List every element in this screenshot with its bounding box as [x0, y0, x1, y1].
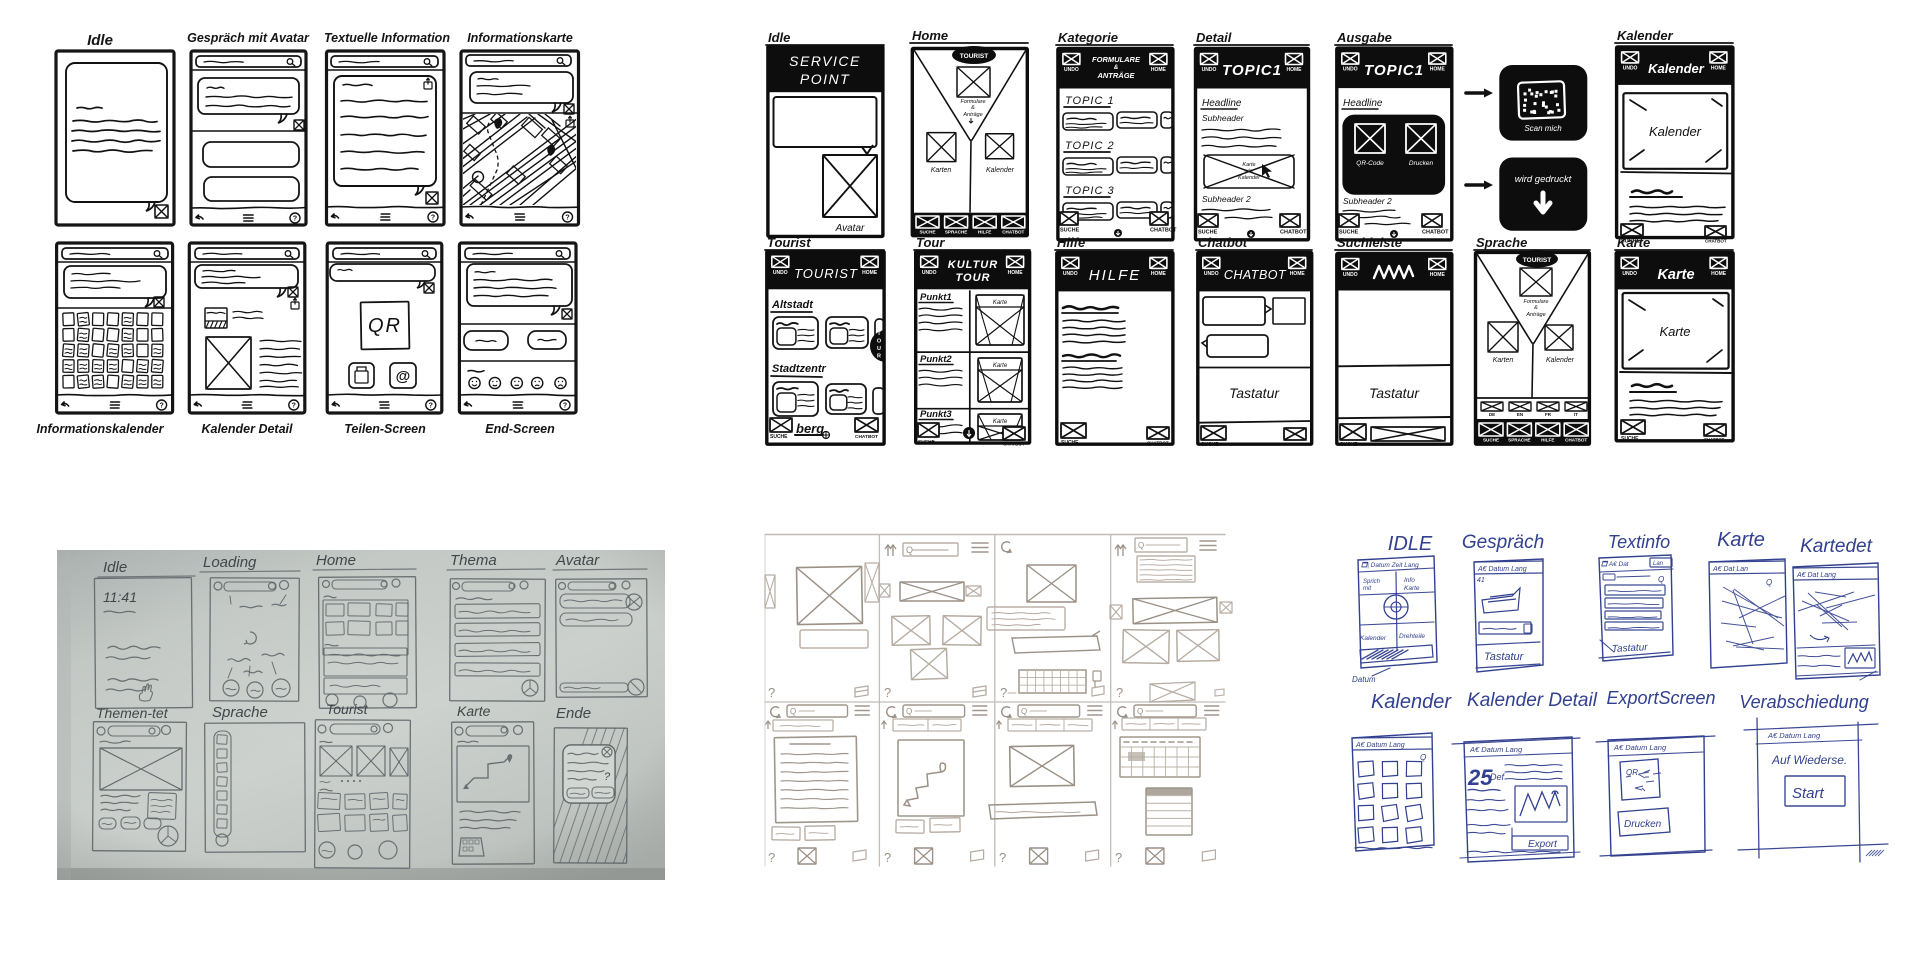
svg-text:UNDO: UNDO	[773, 270, 788, 276]
svg-text:Punkt2: Punkt2	[920, 354, 952, 365]
svg-text:QR: QR	[368, 315, 402, 337]
svg-text:Q: Q	[790, 707, 796, 716]
svg-text:TOUR: TOUR	[956, 272, 991, 284]
svg-text:Karte: Karte	[1404, 585, 1420, 592]
svg-text:🗖| Datum Zeit Lang: 🗖| Datum Zeit Lang	[1361, 561, 1419, 569]
svg-text:CHATBOT: CHATBOT	[1422, 230, 1449, 236]
svg-text:Lan: Lan	[1653, 561, 1664, 567]
svg-text:ExportScreen: ExportScreen	[1606, 688, 1715, 708]
svg-text:Tastatur: Tastatur	[1484, 651, 1525, 663]
svg-text:SUCHE: SUCHE	[1201, 442, 1219, 448]
svg-text:Kalender: Kalender	[986, 167, 1015, 174]
svg-text:O: O	[877, 339, 882, 345]
svg-text:Q: Q	[1658, 575, 1664, 584]
svg-text:A€ Datum Lang: A€ Datum Lang	[1477, 566, 1527, 573]
svg-text:CHATBOT: CHATBOT	[1147, 441, 1169, 446]
svg-text:Kalender Detail: Kalender Detail	[201, 422, 293, 436]
svg-text:Tourist: Tourist	[767, 235, 811, 250]
svg-text:@: @	[396, 368, 411, 385]
svg-text:Idle: Idle	[87, 32, 113, 49]
svg-text:R: R	[877, 354, 881, 360]
svg-text:CHATBOT: CHATBOT	[1280, 230, 1307, 236]
svg-text:Headline: Headline	[1343, 98, 1383, 109]
svg-text:QR: QR	[1626, 768, 1638, 777]
svg-text:mit: mit	[1363, 586, 1371, 592]
svg-text:UNDO: UNDO	[1343, 67, 1358, 73]
svg-text:Altstadt: Altstadt	[771, 299, 814, 311]
svg-text:Kalender: Kalender	[1238, 175, 1261, 181]
svg-text:HOME: HOME	[1430, 272, 1446, 278]
svg-text:A€ Datum Lang: A€ Datum Lang	[1613, 743, 1667, 752]
svg-text:Tour: Tour	[916, 235, 945, 250]
svg-text:SUCHE: SUCHE	[919, 230, 935, 235]
svg-text:CHATBOT: CHATBOT	[1150, 228, 1177, 234]
svg-text:Tastatur: Tastatur	[1612, 642, 1649, 655]
svg-text:A€ Datum Lang: A€ Datum Lang	[1355, 742, 1405, 749]
svg-text:Gespräch mit Avatar: Gespräch mit Avatar	[187, 31, 310, 45]
svg-text:HOME: HOME	[1290, 271, 1306, 277]
svg-text:UNDO: UNDO	[1064, 67, 1079, 73]
svg-text:Kalender: Kalender	[1360, 635, 1387, 642]
svg-text:HILFE: HILFE	[978, 230, 991, 235]
svg-text:Subheader 2: Subheader 2	[1343, 196, 1392, 206]
svg-text:CHATBOT: CHATBOT	[855, 434, 878, 440]
svg-text:SUCHE: SUCHE	[1061, 440, 1079, 446]
svg-text:HOME: HOME	[1151, 67, 1167, 73]
svg-text:Karte: Karte	[993, 419, 1008, 425]
svg-text:Informationskarte: Informationskarte	[467, 31, 573, 45]
svg-text:Punkt1: Punkt1	[920, 292, 952, 303]
svg-text:SPRACHE: SPRACHE	[1508, 438, 1530, 443]
svg-text:Q: Q	[906, 707, 912, 716]
svg-text:FORMULARE: FORMULARE	[1092, 55, 1141, 64]
svg-text:HOME: HOME	[862, 270, 878, 276]
svg-text:TOPIC 3: TOPIC 3	[1065, 185, 1115, 197]
svg-text:A€ Dat Lang: A€ Dat Lang	[1796, 572, 1836, 579]
svg-text:Auf Wiederse.: Auf Wiederse.	[1771, 753, 1847, 767]
svg-text:Kategorie: Kategorie	[1058, 30, 1118, 45]
svg-text:SUCHE: SUCHE	[770, 434, 788, 440]
svg-text:?: ?	[884, 850, 891, 865]
svg-text:Drucken: Drucken	[1409, 160, 1434, 167]
svg-text:Sprich: Sprich	[1363, 579, 1381, 585]
svg-text:?: ?	[884, 685, 891, 700]
svg-text:UNDO: UNDO	[1343, 272, 1358, 278]
svg-text:Anträge: Anträge	[962, 112, 982, 118]
svg-text:UNDO: UNDO	[1622, 271, 1637, 277]
svg-text:Themen-tet: Themen-tet	[96, 705, 169, 721]
svg-text:Karte: Karte	[1717, 529, 1765, 551]
svg-text:TOPIC1: TOPIC1	[1222, 62, 1282, 79]
svg-text:Ausgabe: Ausgabe	[1336, 30, 1392, 45]
svg-text:U: U	[877, 346, 881, 352]
svg-text:?: ?	[768, 850, 775, 865]
svg-text:Ende: Ende	[556, 705, 591, 722]
svg-text:41: 41	[1477, 577, 1485, 584]
svg-text:?: ?	[429, 403, 433, 410]
svg-text:Loading: Loading	[203, 554, 257, 571]
svg-text:Avatar: Avatar	[835, 223, 865, 234]
svg-text:CHATBOT: CHATBOT	[1705, 239, 1727, 244]
svg-text:Karte: Karte	[457, 703, 491, 719]
svg-text:Detail: Detail	[1196, 30, 1232, 45]
svg-text:A€ Datum Lang: A€ Datum Lang	[1469, 745, 1523, 754]
svg-text:Q: Q	[1021, 707, 1027, 716]
svg-text:Textuelle Information: Textuelle Information	[324, 31, 450, 45]
svg-text:SERVICE: SERVICE	[789, 53, 861, 69]
svg-text:Karte: Karte	[993, 300, 1008, 306]
svg-text:CHATBOT: CHATBOT	[1565, 438, 1587, 443]
svg-text:HOME: HOME	[1711, 65, 1727, 71]
svg-text:Q: Q	[1766, 578, 1772, 587]
svg-text:TOPIC1: TOPIC1	[1364, 62, 1424, 79]
svg-text:Subheader: Subheader	[1202, 113, 1245, 123]
svg-text:?: ?	[999, 850, 1006, 865]
svg-text:HILFE: HILFE	[1089, 267, 1142, 284]
svg-text:Subheader 2: Subheader 2	[1202, 194, 1251, 204]
svg-text:POINT: POINT	[800, 71, 850, 87]
svg-text:A€ Dat Lan: A€ Dat Lan	[1712, 566, 1748, 573]
svg-text:SUCHE: SUCHE	[1483, 438, 1499, 443]
svg-text:HOME: HOME	[1008, 270, 1024, 276]
svg-text:?: ?	[293, 216, 297, 223]
svg-text:&: &	[1534, 305, 1538, 311]
svg-text:Scan mich: Scan mich	[1524, 124, 1562, 133]
svg-text:?: ?	[768, 685, 775, 700]
svg-text:CHATBOT: CHATBOT	[1002, 230, 1024, 235]
svg-text:QR-Code: QR-Code	[1356, 160, 1384, 167]
svg-text:?: ?	[563, 403, 567, 410]
svg-text:Karten: Karten	[931, 167, 952, 174]
svg-text:SUCHE: SUCHE	[918, 439, 936, 445]
svg-text:Idle: Idle	[103, 559, 127, 576]
svg-text:Kalender: Kalender	[1617, 28, 1674, 43]
svg-text:TOURIST: TOURIST	[794, 266, 858, 281]
svg-text:&: &	[971, 105, 975, 111]
svg-text:Start: Start	[1792, 785, 1825, 802]
svg-text:?: ?	[292, 403, 296, 410]
svg-text:Kalender: Kalender	[1649, 124, 1702, 139]
svg-text:UNDO: UNDO	[1063, 271, 1078, 277]
svg-text:A€ Datum Lang: A€ Datum Lang	[1767, 731, 1821, 740]
svg-text:Informationskalender: Informationskalender	[36, 422, 164, 436]
svg-text:ANTRÄGE: ANTRÄGE	[1096, 71, 1135, 80]
svg-text:Info: Info	[1404, 577, 1415, 584]
svg-text:EN: EN	[1517, 412, 1523, 417]
svg-text:Def: Def	[1490, 772, 1506, 782]
svg-text:Anträge: Anträge	[1525, 312, 1545, 318]
svg-text:?: ?	[159, 403, 163, 410]
svg-text:HOME: HOME	[1430, 67, 1446, 73]
svg-text:Avatar: Avatar	[555, 552, 600, 569]
svg-text:Home: Home	[316, 552, 356, 569]
svg-text:Karten: Karten	[1493, 357, 1514, 364]
svg-text:CHATBOT: CHATBOT	[1704, 437, 1725, 442]
svg-text:SPRACHE: SPRACHE	[945, 230, 967, 235]
svg-text:FR: FR	[1545, 412, 1552, 417]
svg-text:End-Screen: End-Screen	[485, 422, 555, 436]
svg-text:Kalender: Kalender	[1371, 691, 1452, 713]
svg-text:Drehteile: Drehteile	[1399, 633, 1425, 640]
svg-text:🗖 A€ Dat: 🗖 A€ Dat	[1601, 560, 1630, 568]
svg-text:Stadtzentr: Stadtzentr	[772, 363, 827, 375]
svg-text:Home: Home	[912, 28, 948, 43]
svg-text:SUCHE: SUCHE	[1621, 436, 1639, 442]
svg-text:Verabschiedung: Verabschiedung	[1739, 692, 1868, 712]
svg-text:IT: IT	[1574, 412, 1578, 417]
svg-text:HOME: HOME	[1151, 271, 1167, 277]
svg-text:Tastatur: Tastatur	[1229, 385, 1280, 401]
svg-text:Kalender: Kalender	[1546, 357, 1575, 364]
svg-text:Thema: Thema	[450, 552, 497, 569]
svg-text:TOPIC 2: TOPIC 2	[1065, 140, 1115, 152]
svg-text:Sprache: Sprache	[212, 704, 268, 721]
svg-text:Suchleiste: Suchleiste	[1337, 235, 1402, 250]
svg-text:CHATBOT: CHATBOT	[1003, 442, 1025, 447]
svg-text:UNDO: UNDO	[922, 270, 937, 276]
svg-text:Karte: Karte	[993, 363, 1008, 369]
svg-text:berg: berg	[796, 421, 824, 436]
svg-text:Tourist: Tourist	[326, 701, 369, 717]
svg-text:UNDO: UNDO	[1202, 67, 1217, 73]
svg-text:?: ?	[431, 215, 435, 222]
svg-text:KULTUR: KULTUR	[948, 259, 998, 271]
svg-text:HILFE: HILFE	[1541, 438, 1554, 443]
svg-text:TOPIC 1: TOPIC 1	[1065, 95, 1115, 107]
svg-text:Drucken: Drucken	[1624, 819, 1662, 830]
svg-text:DE: DE	[1489, 412, 1495, 417]
svg-text:Chatbot: Chatbot	[1198, 235, 1248, 250]
svg-text:Punkt3: Punkt3	[920, 409, 952, 420]
svg-text:Idle: Idle	[768, 30, 790, 45]
svg-text:UNDO: UNDO	[1204, 271, 1219, 277]
svg-text:?: ?	[1115, 850, 1122, 865]
svg-text:Hilfe: Hilfe	[1057, 235, 1085, 250]
svg-text:Karte: Karte	[1657, 267, 1694, 283]
svg-text:Export: Export	[1528, 839, 1558, 850]
svg-text:Q: Q	[1137, 707, 1143, 716]
svg-text:Q: Q	[1420, 753, 1426, 762]
svg-text:oder: oder	[1244, 168, 1254, 173]
svg-text:wird gedruckt: wird gedruckt	[1515, 174, 1572, 185]
svg-text:?: ?	[1000, 685, 1007, 700]
svg-text:Tastatur: Tastatur	[1369, 385, 1420, 401]
svg-text:SUCHE: SUCHE	[1060, 228, 1080, 234]
svg-text:Kalender: Kalender	[1648, 61, 1705, 76]
svg-text:Q: Q	[1138, 541, 1144, 550]
svg-text:Sprache: Sprache	[1476, 235, 1527, 250]
svg-text:HOME: HOME	[1711, 271, 1727, 277]
svg-text:Karte: Karte	[1617, 235, 1650, 250]
svg-text:HOME: HOME	[1287, 67, 1303, 73]
svg-text:Textinfo: Textinfo	[1608, 532, 1670, 552]
svg-text:?: ?	[565, 215, 569, 222]
svg-text:?: ?	[1116, 685, 1123, 700]
svg-text:CHATBOT: CHATBOT	[1284, 442, 1306, 447]
svg-text:SUCHE: SUCHE	[1340, 442, 1358, 448]
svg-text:Kartedet: Kartedet	[1800, 536, 1873, 557]
svg-text:Karte: Karte	[1659, 324, 1690, 339]
svg-text:TOURIST: TOURIST	[1523, 257, 1551, 264]
svg-text:Gespräch: Gespräch	[1462, 532, 1544, 553]
svg-text:UNDO: UNDO	[1623, 65, 1638, 71]
svg-text:Kalender Detail: Kalender Detail	[1467, 690, 1598, 711]
svg-text:?: ?	[604, 771, 611, 783]
svg-text:TOURIST: TOURIST	[960, 53, 988, 60]
svg-text:Headline: Headline	[1202, 98, 1242, 109]
svg-text:Teilen-Screen: Teilen-Screen	[344, 422, 426, 436]
svg-text:11:41: 11:41	[103, 589, 137, 605]
svg-text:IDLE: IDLE	[1388, 533, 1433, 555]
svg-text:CHATBOT: CHATBOT	[1224, 268, 1287, 282]
